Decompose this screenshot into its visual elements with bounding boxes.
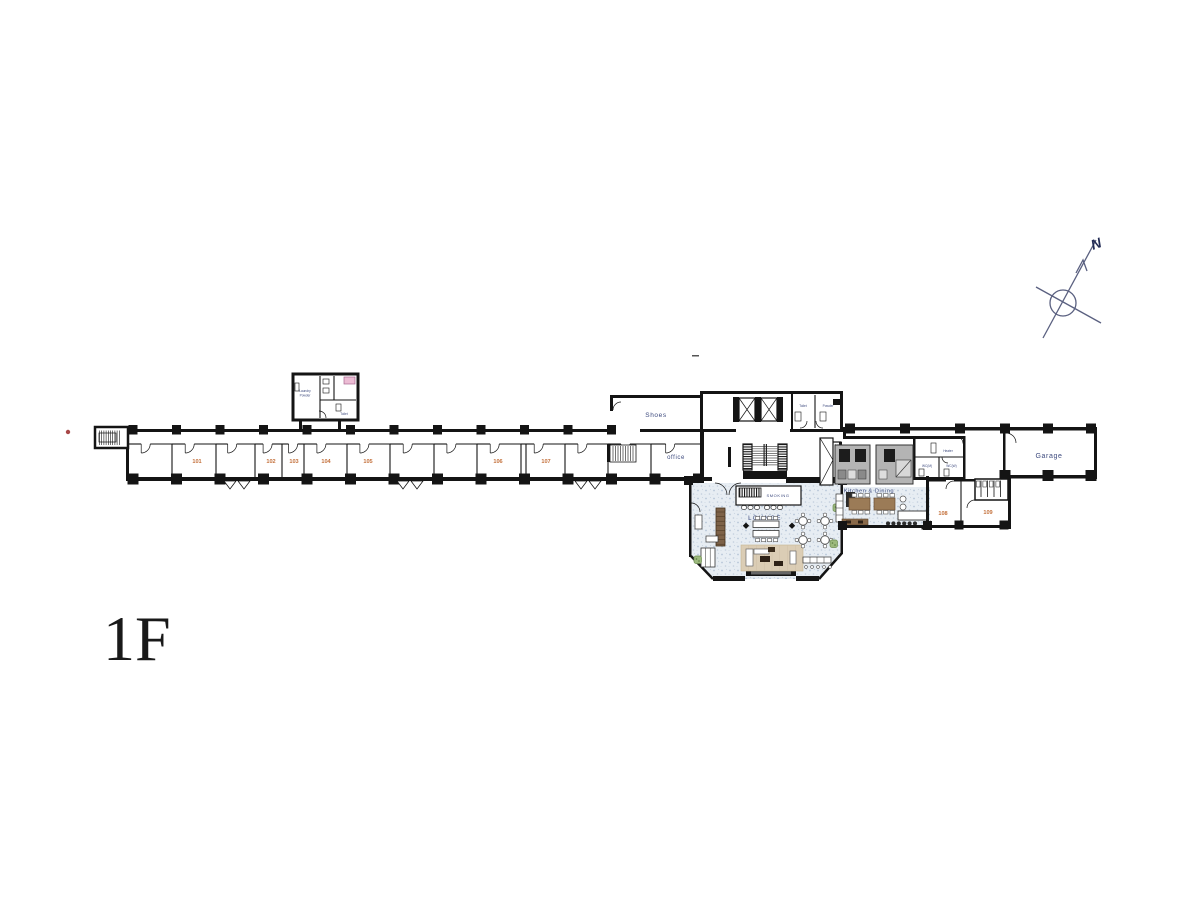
kitchen-island [835, 445, 870, 484]
shoes-label: Shoes [645, 412, 667, 419]
floor-plan-drawing: 101102103104105106107108109 Laundry Powd… [0, 0, 1200, 900]
washer-icon [344, 377, 355, 384]
lounge-table [753, 531, 779, 538]
room-number-106: 106 [493, 459, 502, 465]
heater-label: Heater [943, 449, 954, 453]
rooms-108-109 [926, 476, 1011, 529]
floor-plan-canvas: 101102103104105106107108109 Laundry Powd… [0, 0, 1200, 900]
room-number-105: 105 [363, 459, 372, 465]
room-number-103: 103 [289, 459, 298, 465]
floor-label: 1F [103, 603, 171, 674]
bar-counter [898, 511, 928, 520]
core-powder-label: Powder [823, 404, 835, 408]
smoking-booth: SMOKING [736, 486, 801, 505]
west-stair [95, 427, 128, 448]
laundry-label: Laundry [299, 389, 311, 393]
rug-sofa-set [741, 545, 803, 571]
laundry-annex: Laundry Powder Toilet [293, 374, 358, 430]
office-room: office [607, 444, 685, 462]
office-label: office [667, 455, 685, 461]
utility-rooms: Heater WC(M) WC(W) [915, 437, 963, 479]
room-number-104: 104 [321, 459, 331, 465]
dining-table [849, 498, 870, 510]
compass-icon [1036, 240, 1101, 338]
tick-mark [692, 355, 699, 357]
wc-w-label: WC(W) [946, 464, 956, 468]
dining-table [874, 498, 895, 510]
wc-m-label: WC(M) [922, 464, 932, 468]
room-number-108: 108 [938, 511, 947, 517]
kitchen-island [876, 445, 913, 484]
toilet-label: Toilet [340, 412, 348, 416]
powder-label: Powder [300, 394, 312, 398]
cabinet [701, 548, 715, 567]
room-number-107: 107 [541, 459, 550, 465]
generated-structure: 101102103104105106107108109 [128, 424, 1097, 530]
reference-dot [66, 430, 70, 434]
smoking-label: SMOKING [766, 493, 789, 498]
shoes-room: Shoes [610, 395, 702, 432]
room-number-101: 101 [192, 459, 201, 465]
core-toilet-label: Toilet [799, 404, 807, 408]
garage-label: Garage [1036, 453, 1063, 460]
lounge-area: SMOKING LOUNGE [684, 476, 847, 581]
room-number-102: 102 [266, 459, 275, 465]
room-number-109: 109 [983, 510, 992, 516]
lounge-table [753, 521, 779, 528]
